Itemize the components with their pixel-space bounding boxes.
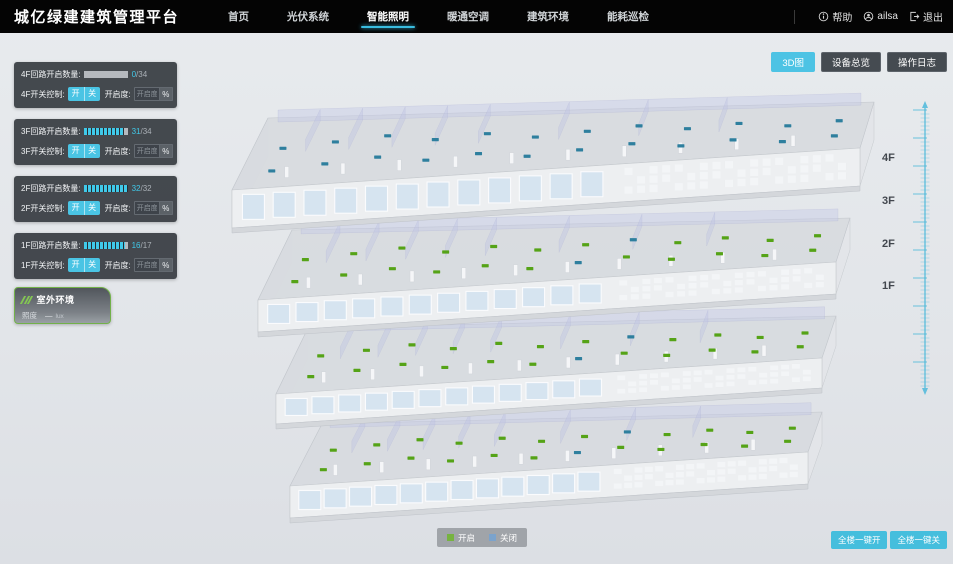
legend-on-label: 开启 — [458, 532, 475, 544]
dim-input-group: % — [134, 87, 173, 101]
floor-panel-2f: 2F回路开启数量: 32/32 2F开关控制: 开 关 开启度: % — [14, 176, 177, 222]
dim-input[interactable] — [134, 87, 160, 101]
switch-button-group: 开 关 — [68, 144, 100, 158]
floor-marker-2f[interactable]: 2F — [882, 238, 904, 250]
logout-icon — [909, 11, 920, 22]
legend-on-swatch — [447, 534, 454, 541]
dim-input[interactable] — [134, 144, 160, 158]
legend-off-item: 关闭 — [489, 532, 517, 544]
building-3d-view[interactable] — [205, 88, 895, 528]
dim-label: 开启度: — [105, 89, 131, 100]
dim-label: 开启度: — [105, 260, 131, 271]
help-icon — [818, 11, 829, 22]
legend-on-item: 开启 — [447, 532, 475, 544]
all-off-button[interactable]: 全楼一键关 — [890, 531, 947, 549]
legend-off-label: 关闭 — [500, 532, 517, 544]
view-3d-button[interactable]: 3D图 — [771, 52, 815, 72]
switch-control-label: 1F开关控制: — [21, 260, 65, 271]
header-right: 帮助 ailsa 退出 — [794, 9, 943, 24]
switch-button-group: 开 关 — [68, 87, 100, 101]
circuit-count-value: 32/32 — [132, 184, 152, 193]
user-menu[interactable]: ailsa — [863, 11, 898, 22]
user-name: ailsa — [877, 11, 898, 22]
bulk-actions: 全楼一键开 全楼一键关 — [831, 531, 947, 549]
dim-percent-button[interactable]: % — [160, 87, 173, 101]
circuit-count-value: 31/34 — [132, 127, 152, 136]
nav-item-home[interactable]: 首页 — [222, 0, 255, 33]
dim-percent-button[interactable]: % — [160, 258, 173, 272]
circuit-count-label: 3F回路开启数量: — [21, 126, 81, 137]
dim-input-group: % — [134, 201, 173, 215]
dim-label: 开启度: — [105, 203, 131, 214]
circuit-count-label: 4F回路开启数量: — [21, 69, 81, 80]
operation-log-button[interactable]: 操作日志 — [887, 52, 947, 72]
smart-lighting-page: 城亿绿建建筑管理平台 首页 光伏系统 智能照明 暖通空调 建筑环境 能耗巡检 帮… — [0, 0, 953, 564]
illuminance-unit: lux — [56, 313, 64, 320]
switch-control-label: 2F开关控制: — [21, 203, 65, 214]
dim-percent-button[interactable]: % — [160, 144, 173, 158]
nav-item-smart-lighting[interactable]: 智能照明 — [361, 0, 415, 33]
switch-off-button[interactable]: 关 — [84, 201, 100, 215]
dim-input-group: % — [134, 144, 173, 158]
illuminance-label: 照度 — [22, 310, 37, 321]
illuminance-value: — — [45, 311, 53, 320]
top-nav-bar: 城亿绿建建筑管理平台 首页 光伏系统 智能照明 暖通空调 建筑环境 能耗巡检 帮… — [0, 0, 953, 33]
zoom-ruler-slider[interactable] — [908, 98, 942, 398]
legend-off-swatch — [489, 534, 496, 541]
help-label: 帮助 — [832, 9, 852, 24]
nav-item-energy-inspect[interactable]: 能耗巡检 — [601, 0, 655, 33]
circuit-progress-bar — [84, 242, 128, 249]
nav-item-pv-system[interactable]: 光伏系统 — [281, 0, 335, 33]
dim-label: 开启度: — [105, 146, 131, 157]
view-switcher: 3D图 设备总览 操作日志 — [771, 52, 947, 72]
brand-title: 城亿绿建建筑管理平台 — [14, 6, 179, 27]
outdoor-title: 室外环境 — [37, 293, 75, 306]
env-icon — [22, 296, 33, 304]
switch-off-button[interactable]: 关 — [84, 87, 100, 101]
main-nav: 首页 光伏系统 智能照明 暖通空调 建筑环境 能耗巡检 — [209, 0, 668, 33]
dim-percent-button[interactable]: % — [160, 201, 173, 215]
dim-input-group: % — [134, 258, 173, 272]
circuit-count-value: 16/17 — [132, 241, 152, 250]
floor-panel-4f: 4F回路开启数量: 0/34 4F开关控制: 开 关 开启度: % — [14, 62, 177, 108]
switch-on-button[interactable]: 开 — [68, 201, 84, 215]
circuit-count-value: 0/34 — [132, 70, 148, 79]
nav-item-building-env[interactable]: 建筑环境 — [521, 0, 575, 33]
logout-label: 退出 — [923, 9, 943, 24]
switch-on-button[interactable]: 开 — [68, 144, 84, 158]
switch-on-button[interactable]: 开 — [68, 87, 84, 101]
floor-panel-3f: 3F回路开启数量: 31/34 3F开关控制: 开 关 开启度: % — [14, 119, 177, 165]
outdoor-env-panel: 室外环境 照度 — lux — [14, 287, 111, 324]
floor-marker-4f[interactable]: 4F — [882, 152, 904, 164]
switch-button-group: 开 关 — [68, 258, 100, 272]
floor-panel-1f: 1F回路开启数量: 16/17 1F开关控制: 开 关 开启度: % — [14, 233, 177, 279]
dim-input[interactable] — [134, 201, 160, 215]
device-overview-button[interactable]: 设备总览 — [821, 52, 881, 72]
dim-input[interactable] — [134, 258, 160, 272]
switch-on-button[interactable]: 开 — [68, 258, 84, 272]
floor-marker-3f[interactable]: 3F — [882, 195, 904, 207]
circuit-progress-bar — [84, 71, 128, 78]
logout-link[interactable]: 退出 — [909, 9, 943, 24]
header-separator — [794, 10, 795, 24]
all-on-button[interactable]: 全楼一键开 — [831, 531, 888, 549]
lights-legend: 开启 关闭 — [437, 528, 527, 547]
circuit-progress-bar — [84, 185, 128, 192]
switch-control-label: 4F开关控制: — [21, 89, 65, 100]
switch-control-label: 3F开关控制: — [21, 146, 65, 157]
help-link[interactable]: 帮助 — [818, 9, 852, 24]
floor-marker-1f[interactable]: 1F — [882, 280, 904, 292]
circuit-count-label: 1F回路开启数量: — [21, 240, 81, 251]
switch-off-button[interactable]: 关 — [84, 258, 100, 272]
user-icon — [863, 11, 874, 22]
switch-button-group: 开 关 — [68, 201, 100, 215]
circuit-count-label: 2F回路开启数量: — [21, 183, 81, 194]
zoom-ruler-scale — [908, 98, 942, 398]
switch-off-button[interactable]: 关 — [84, 144, 100, 158]
circuit-progress-bar — [84, 128, 128, 135]
nav-item-hvac[interactable]: 暖通空调 — [441, 0, 495, 33]
